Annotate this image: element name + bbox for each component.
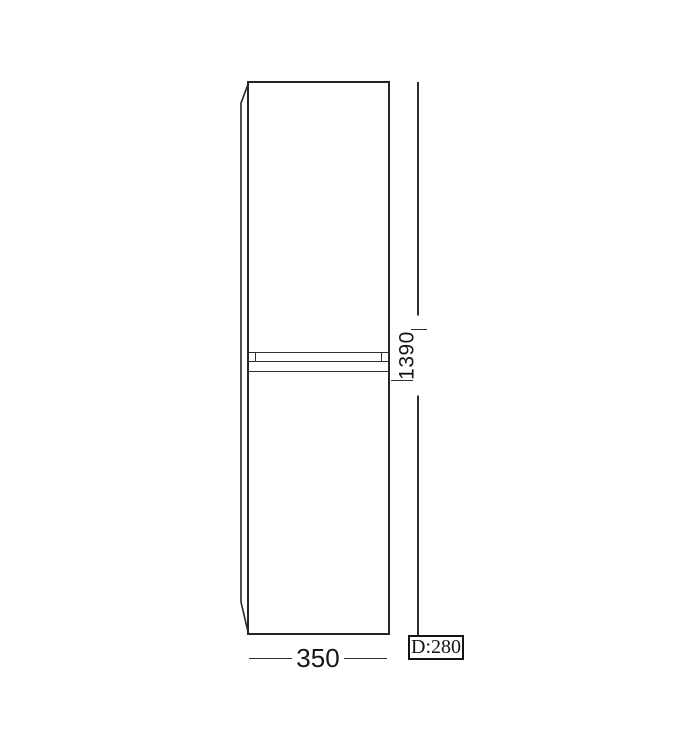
divider-line-top xyxy=(249,352,389,354)
height-dimension-line-upper xyxy=(417,82,418,330)
depth-label: D:280 xyxy=(411,636,461,659)
divider-end-tick-left xyxy=(255,352,257,362)
height-dimension-line-lower xyxy=(417,380,418,635)
divider-end-tick-right xyxy=(381,352,383,362)
depth-badge: D:280 xyxy=(408,635,464,660)
height-dimension-jog-bottom xyxy=(391,380,413,381)
width-dimension-line-right xyxy=(339,658,387,659)
height-dimension-jog-top xyxy=(411,329,427,330)
divider-line-bottom xyxy=(249,371,389,373)
cabinet-side-edge xyxy=(236,78,254,640)
divider-line-middle xyxy=(249,361,389,363)
drawing-canvas: 1390 350 D:280 xyxy=(0,0,678,730)
width-dimension-line-left xyxy=(249,658,296,659)
height-dimension-label: 1390 xyxy=(395,316,420,396)
width-dimension-label: 350 xyxy=(292,644,344,673)
cabinet-front-outline xyxy=(247,81,390,635)
